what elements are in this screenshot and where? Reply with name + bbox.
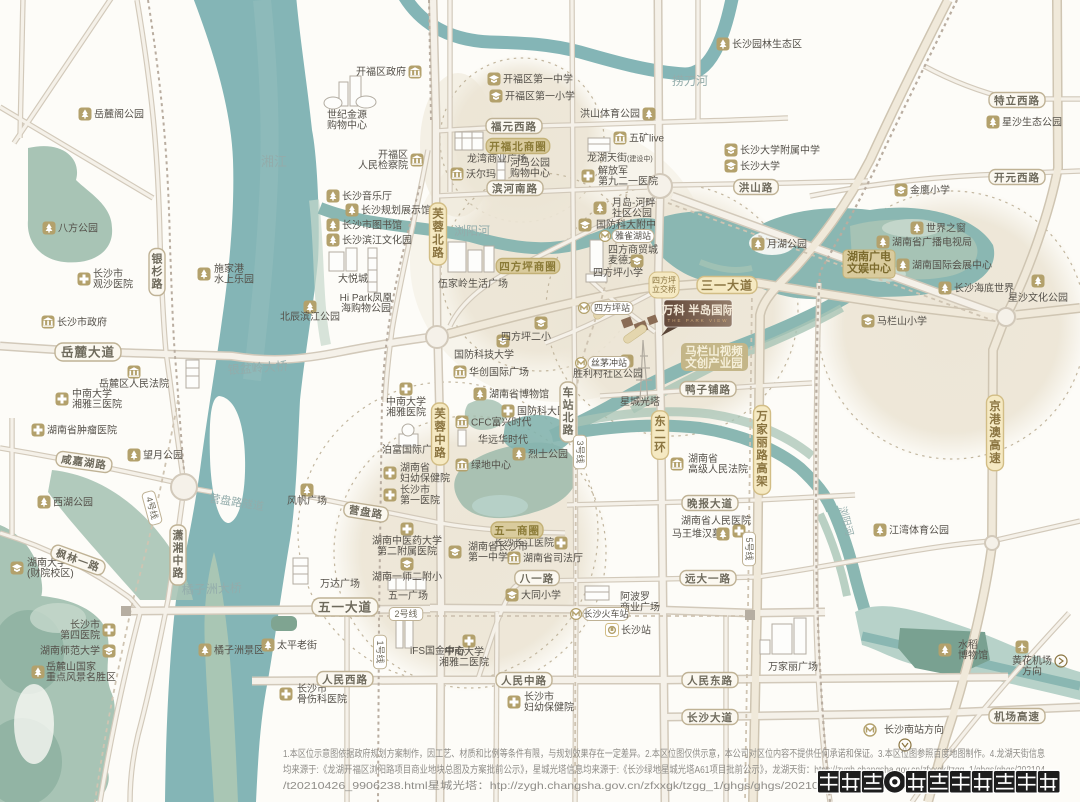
svg-text:岳麓大道: 岳麓大道 bbox=[61, 345, 115, 360]
svg-text:长沙市图书馆: 长沙市图书馆 bbox=[342, 219, 402, 232]
svg-text:湖南中医药大学第二附属医院: 湖南中医药大学第二附属医院 bbox=[372, 534, 442, 558]
svg-text:京港澳高速: 京港澳高速 bbox=[989, 399, 1001, 465]
svg-text:四方坪小学: 四方坪小学 bbox=[593, 266, 643, 279]
svg-text:开福区第一小学: 开福区第一小学 bbox=[505, 90, 575, 103]
svg-text:四方坪二小: 四方坪二小 bbox=[501, 330, 551, 343]
svg-text:湖南省广播电视局: 湖南省广播电视局 bbox=[892, 236, 972, 249]
svg-text:1号线: 1号线 bbox=[375, 640, 386, 663]
svg-text:机场高速: 机场高速 bbox=[994, 710, 1040, 723]
svg-text:五矿live: 五矿live bbox=[629, 132, 664, 145]
svg-text:西湖公园: 西湖公园 bbox=[53, 497, 93, 509]
svg-text:1.本区位示意图依据政府规划方案制作，因工艺、材质和比例等条: 1.本区位示意图依据政府规划方案制作，因工艺、材质和比例等条件有限，与规划效果存… bbox=[283, 747, 1045, 760]
svg-text:中南大学湘雅医院: 中南大学湘雅医院 bbox=[386, 395, 426, 419]
svg-text:捞刀河: 捞刀河 bbox=[672, 74, 708, 88]
svg-text:2号线: 2号线 bbox=[394, 608, 417, 619]
svg-text:开福区政府: 开福区政府 bbox=[356, 65, 406, 78]
svg-text:5号线: 5号线 bbox=[744, 537, 755, 560]
svg-text:华远华时代: 华远华时代 bbox=[478, 433, 528, 446]
svg-text:八方公园: 八方公园 bbox=[58, 222, 98, 235]
svg-text:福元西路: 福元西路 bbox=[490, 120, 537, 133]
svg-text:星沙生态公园: 星沙生态公园 bbox=[1002, 116, 1062, 129]
svg-text:世纪金源购物中心: 世纪金源购物中心 bbox=[327, 108, 367, 132]
svg-text:五一大道: 五一大道 bbox=[318, 600, 372, 615]
svg-text:太平老街: 太平老街 bbox=[277, 639, 317, 652]
svg-text:四方坪立交桥: 四方坪立交桥 bbox=[652, 275, 676, 294]
svg-text:洪山路: 洪山路 bbox=[739, 181, 774, 194]
svg-text:湖南广电文娱中心: 湖南广电文娱中心 bbox=[847, 249, 891, 275]
svg-text:iFS国金中心: iFS国金中心 bbox=[410, 644, 465, 657]
svg-text:丝茅冲站: 丝茅冲站 bbox=[591, 357, 627, 368]
svg-text:特立西路: 特立西路 bbox=[994, 94, 1040, 107]
svg-text:湖南国际会展中心: 湖南国际会展中心 bbox=[912, 259, 992, 272]
svg-text:万达广场: 万达广场 bbox=[320, 577, 360, 590]
svg-text:长沙滨江文化园: 长沙滨江文化园 bbox=[342, 234, 412, 247]
svg-text:四方坪站: 四方坪站 bbox=[594, 302, 630, 313]
svg-text:开元西路: 开元西路 bbox=[994, 171, 1040, 184]
svg-text:银杉路: 银杉路 bbox=[152, 252, 164, 291]
svg-text:五一商圈: 五一商圈 bbox=[494, 524, 540, 537]
svg-text:潇湘中路: 潇湘中路 bbox=[173, 528, 185, 580]
svg-text:湘江: 湘江 bbox=[261, 154, 287, 169]
svg-text:晚报大道: 晚报大道 bbox=[687, 497, 733, 510]
svg-text:大同小学: 大同小学 bbox=[521, 589, 561, 602]
svg-text:3号线: 3号线 bbox=[575, 440, 586, 463]
svg-text:洪山体育公园: 洪山体育公园 bbox=[580, 107, 640, 120]
svg-text:马栏山视频文创产业园: 马栏山视频文创产业园 bbox=[685, 344, 743, 370]
svg-text:万家丽广场: 万家丽广场 bbox=[768, 660, 818, 673]
svg-text:浏阳河: 浏阳河 bbox=[454, 224, 490, 238]
svg-text:Hi Park凤凰海购物公园: Hi Park凤凰海购物公园 bbox=[340, 292, 393, 315]
svg-text:伍家岭生活广场: 伍家岭生活广场 bbox=[438, 277, 508, 290]
svg-text:长沙大学: 长沙大学 bbox=[740, 160, 780, 173]
svg-text:万科 半岛国际: 万科 半岛国际 bbox=[661, 303, 735, 317]
svg-text:芙蓉中路: 芙蓉中路 bbox=[433, 407, 446, 460]
svg-text:三一大道: 三一大道 bbox=[701, 277, 753, 292]
svg-text:月湖公园: 月湖公园 bbox=[767, 239, 807, 251]
svg-text:岳麓阁公园: 岳麓阁公园 bbox=[94, 108, 144, 121]
svg-text:金鹰小学: 金鹰小学 bbox=[910, 184, 950, 197]
svg-text:鸭子铺路: 鸭子铺路 bbox=[685, 383, 731, 396]
svg-text:车站北路: 车站北路 bbox=[563, 385, 575, 437]
svg-text:世界之窗: 世界之窗 bbox=[926, 222, 966, 235]
svg-text:人民东路: 人民东路 bbox=[687, 674, 733, 687]
svg-text:风帆广场: 风帆广场 bbox=[287, 494, 327, 507]
svg-text:THE PARK VIEW: THE PARK VIEW bbox=[668, 318, 729, 323]
svg-text:人民西路: 人民西路 bbox=[322, 673, 368, 686]
svg-text:湖南师范大学: 湖南师范大学 bbox=[40, 644, 100, 657]
svg-text:长沙市政府: 长沙市政府 bbox=[57, 316, 107, 329]
svg-text:江湾体育公园: 江湾体育公园 bbox=[889, 524, 949, 537]
svg-text:东二环: 东二环 bbox=[654, 414, 666, 454]
svg-text:长沙火车站: 长沙火车站 bbox=[583, 608, 628, 619]
svg-text:望月公园: 望月公园 bbox=[143, 449, 183, 462]
svg-text:湖南省肿瘤医院: 湖南省肿瘤医院 bbox=[47, 424, 117, 437]
svg-text:五一广场: 五一广场 bbox=[388, 589, 428, 602]
svg-text:橘子洲景区: 橘子洲景区 bbox=[214, 645, 264, 657]
svg-text:人民中路: 人民中路 bbox=[501, 674, 547, 687]
svg-text:开福北商圈: 开福北商圈 bbox=[489, 140, 547, 153]
svg-text:月岛-河畔社区公园: 月岛-河畔社区公园 bbox=[612, 196, 655, 220]
svg-text:长沙大学附属中学: 长沙大学附属中学 bbox=[740, 144, 820, 157]
svg-text:河马公园购物中心: 河马公园购物中心 bbox=[510, 157, 550, 180]
svg-text:沃尔玛: 沃尔玛 bbox=[466, 168, 496, 181]
svg-text:橘子洲大桥: 橘子洲大桥 bbox=[182, 580, 243, 597]
svg-text:大悦城: 大悦城 bbox=[338, 272, 368, 285]
svg-text:北辰滨江公园: 北辰滨江公园 bbox=[280, 310, 340, 323]
svg-text:远大一路: 远大一路 bbox=[685, 572, 731, 585]
svg-text:滨河南路: 滨河南路 bbox=[492, 182, 538, 195]
svg-text:芙蓉北路: 芙蓉北路 bbox=[431, 207, 444, 260]
svg-text:烈士公园: 烈士公园 bbox=[528, 448, 568, 461]
svg-text:湖南一师二附小: 湖南一师二附小 bbox=[372, 570, 442, 583]
svg-text:雅雀湖站: 雅雀湖站 bbox=[615, 230, 651, 241]
svg-text:长沙音乐厅: 长沙音乐厅 bbox=[342, 190, 392, 203]
svg-text:长沙园林生态区: 长沙园林生态区 bbox=[732, 38, 802, 51]
svg-text:长沙南站方向: 长沙南站方向 bbox=[884, 723, 944, 736]
svg-text:四方坪商圈: 四方坪商圈 bbox=[499, 260, 557, 273]
svg-text:马栏山小学: 马栏山小学 bbox=[877, 315, 927, 328]
svg-text:国防科技大学: 国防科技大学 bbox=[454, 348, 514, 361]
svg-text:华创国际广场: 华创国际广场 bbox=[469, 366, 529, 379]
svg-text:长沙站: 长沙站 bbox=[621, 624, 651, 637]
svg-text:长沙大道: 长沙大道 bbox=[687, 711, 733, 724]
svg-text:星城光塔: 星城光塔 bbox=[620, 395, 660, 408]
svg-text:长沙海底世界: 长沙海底世界 bbox=[954, 282, 1014, 295]
svg-text:湖南省博物馆: 湖南省博物馆 bbox=[489, 388, 549, 401]
svg-text:长沙规划展示馆: 长沙规划展示馆 bbox=[361, 204, 431, 217]
svg-text:开福区第一中学: 开福区第一中学 bbox=[503, 73, 573, 86]
svg-text:湖南省司法厅: 湖南省司法厅 bbox=[523, 552, 583, 565]
svg-text:星沙文化公园: 星沙文化公园 bbox=[1008, 291, 1068, 304]
svg-text:绿地中心: 绿地中心 bbox=[471, 459, 511, 472]
svg-text:八一路: 八一路 bbox=[519, 572, 555, 585]
svg-text:马王堆汉墓: 马王堆汉墓 bbox=[672, 527, 722, 540]
